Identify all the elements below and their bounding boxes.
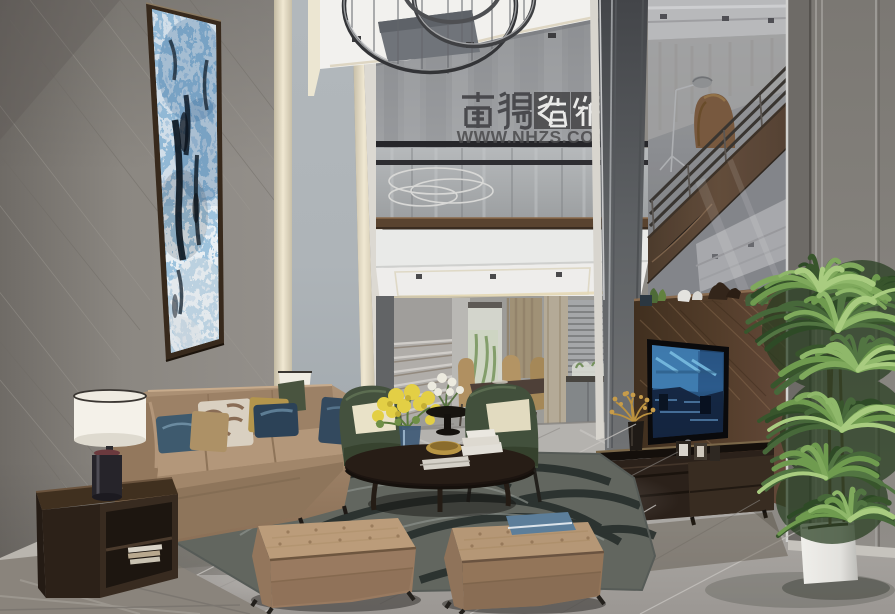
svg-text:WWW.NHZS.COM: WWW.NHZS.COM bbox=[457, 127, 610, 147]
